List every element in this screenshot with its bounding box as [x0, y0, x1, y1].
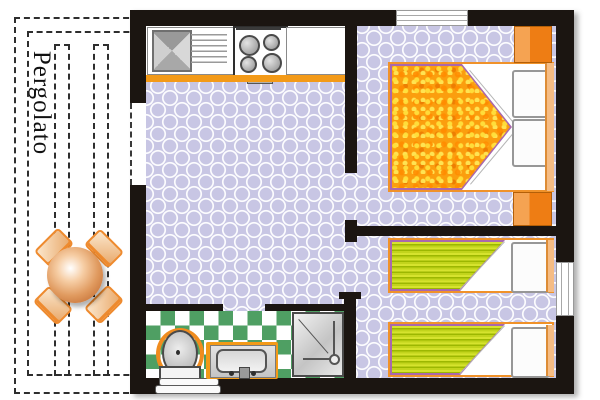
pillow-icon: [511, 327, 550, 378]
wardrobe-icon: [513, 192, 552, 226]
headboard: [546, 240, 554, 292]
pillow-icon: [511, 242, 550, 293]
window-icon: [396, 10, 468, 26]
pillow-icon: [512, 70, 549, 118]
sink-icon: [152, 30, 192, 72]
burner-icon: [239, 35, 260, 56]
burner-icon: [240, 56, 257, 73]
headboard: [546, 325, 554, 376]
burner-icon: [262, 53, 282, 73]
pergola-beam: [93, 44, 109, 376]
bathroom-wall: [265, 304, 356, 311]
interior-wall: [345, 26, 357, 173]
counter-icon: [286, 27, 346, 75]
floor-plan: Pergolato: [0, 0, 600, 400]
toilet-flush-dot: [176, 350, 180, 355]
steps-icon: [155, 385, 221, 394]
burner-icon: [263, 34, 280, 51]
wall-end-cap: [345, 220, 357, 242]
wall-end-cap: [339, 292, 361, 299]
round-table-icon: [47, 247, 103, 303]
drainboard-icon: [191, 34, 227, 65]
entrance-door-opening: [130, 103, 146, 185]
pergola-beam: [54, 44, 70, 376]
interior-wall: [345, 226, 556, 236]
tap-dot: [229, 371, 234, 376]
headboard: [545, 63, 554, 191]
shower-head-icon: [329, 354, 340, 365]
window-icon: [556, 262, 574, 316]
counter-edge: [146, 75, 345, 82]
tap-dot: [251, 371, 256, 376]
pillow-icon: [512, 119, 549, 167]
stove-back-panel: [236, 27, 281, 30]
wardrobe-icon: [514, 26, 552, 63]
bathroom-wall: [146, 304, 223, 311]
pergola-label: Pergolato: [27, 28, 55, 178]
shower-rail: [333, 321, 335, 357]
faucet-icon: [239, 367, 250, 379]
